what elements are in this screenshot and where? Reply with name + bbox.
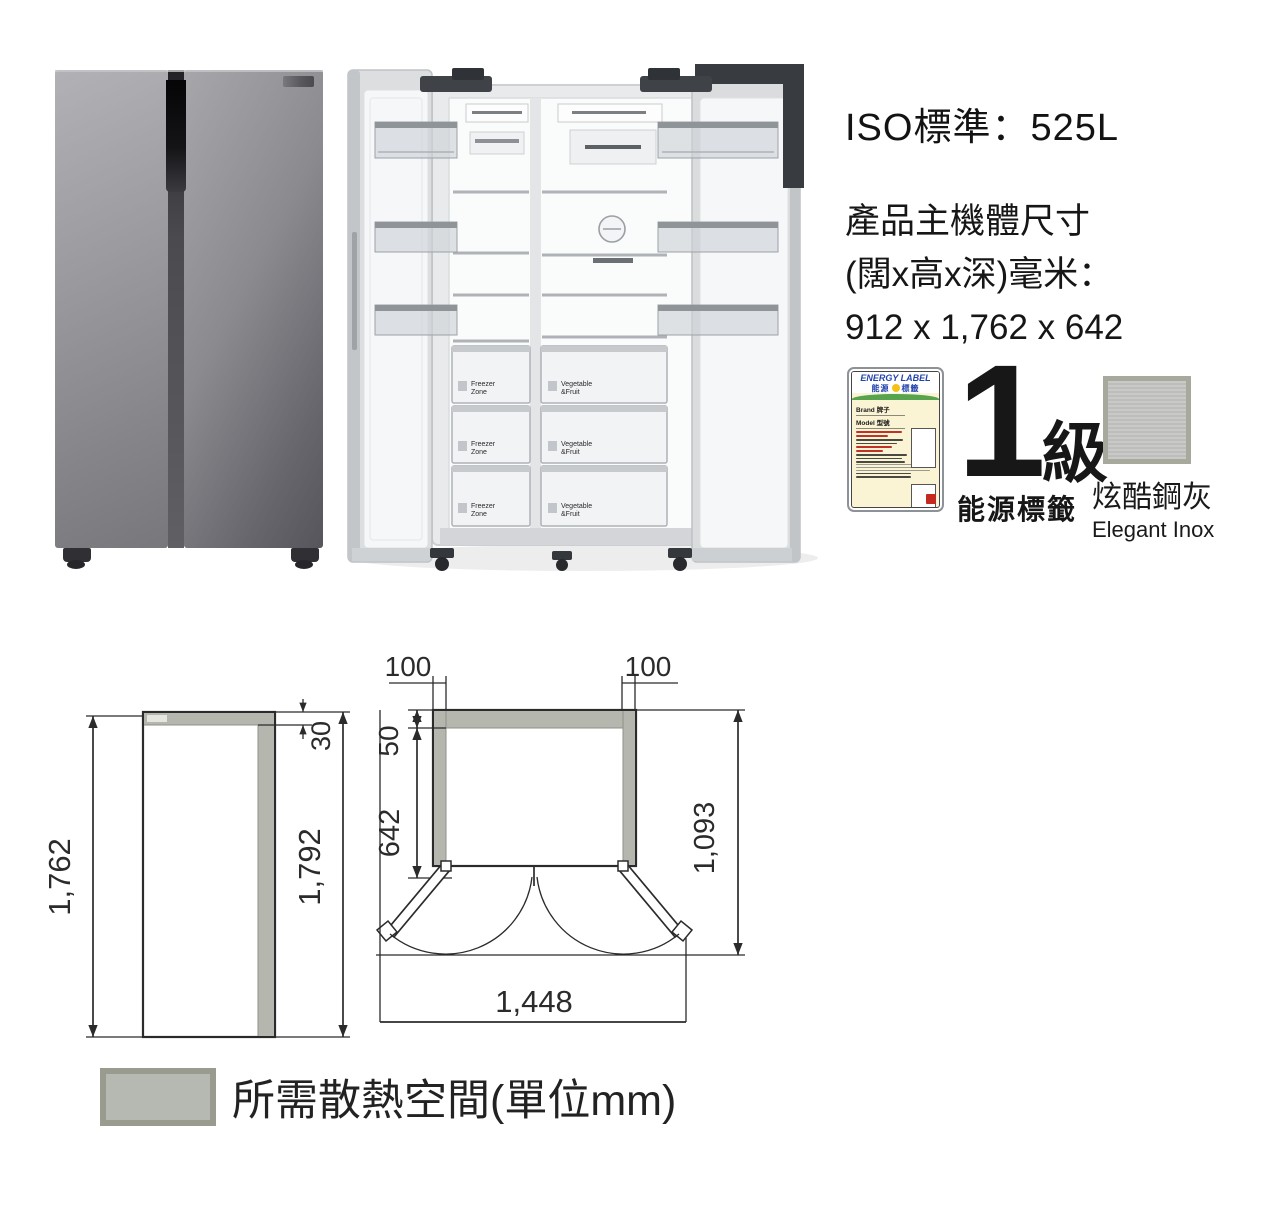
energy-label-fineprint-bar — [856, 470, 930, 471]
energy-label-redtext-bar — [856, 435, 888, 437]
closed-fridge-left-door — [55, 70, 168, 548]
side-view-body — [143, 712, 275, 1037]
side-view-rear-clearance-strip — [258, 725, 274, 1036]
top-view-rear-clearance-label: 50 — [373, 725, 404, 756]
iso-capacity-text: ISO標準：525L — [845, 96, 1265, 151]
energy-label-body: Brand 牌子 Model 型號 — [852, 400, 939, 507]
side-view-body-height-label: 1,762 — [42, 838, 77, 916]
side-view-top-clearance-label: 30 — [306, 721, 336, 751]
svg-text:Zone: Zone — [471, 511, 487, 518]
svg-text:Vegetable: Vegetable — [561, 381, 592, 388]
fridge-lamp-slit — [572, 111, 646, 114]
energy-label-title: ENERGY LABEL — [852, 373, 939, 383]
spec-text-block: ISO標準：525L 產品主機體尺寸 (闊x高x深)毫米： 912 x 1,76… — [845, 96, 1265, 354]
energy-label-redtext-bar — [856, 431, 902, 433]
drawer: Vegetable &Fruit — [541, 406, 667, 463]
finish-name-en: Elegant Inox — [1092, 517, 1202, 543]
energy-label-subtitle-right: 標籤 — [902, 383, 920, 394]
cabinet-center-divider — [530, 98, 541, 534]
top-view-right-clearance-label: 100 — [625, 651, 672, 682]
closed-fridge-handle-accent — [166, 80, 186, 192]
fridge-control-slit — [585, 145, 641, 149]
open-door-swing-drawing — [377, 861, 692, 954]
top-view-total-width-label: 1,448 — [495, 984, 573, 1019]
svg-text:Vegetable: Vegetable — [561, 441, 592, 448]
open-fridge-photo: Freezer Zone Freezer Zone Freezer Zone — [345, 55, 820, 580]
top-view-diagram: 100 100 50 642 1,093 — [365, 645, 760, 1035]
energy-label-text-bar — [856, 439, 903, 441]
right-hinge-block — [648, 68, 680, 80]
top-view-body-depth-label: 642 — [374, 809, 406, 857]
energy-label-text-bar — [856, 454, 907, 456]
svg-text:Vegetable: Vegetable — [561, 503, 592, 510]
energy-label-text-bar — [856, 443, 897, 445]
energy-label-header: ENERGY LABEL 能源 標籤 — [852, 372, 939, 393]
left-door-handle-groove — [352, 232, 357, 350]
energy-label-text-bar — [856, 461, 905, 463]
energy-label-text-bar — [856, 458, 902, 460]
vegetable-drawers: Vegetable &Fruit Vegetable &Fruit Vegeta… — [541, 346, 667, 526]
top-view-right-clearance-strip — [623, 711, 635, 865]
clearance-legend-text: 所需散熱空間(單位mm) — [232, 1066, 676, 1128]
energy-label-brand-row: Brand 牌子 — [856, 403, 905, 416]
energy-label-seal — [926, 494, 936, 504]
fridge-shelf-trim — [593, 258, 633, 263]
drawer: Freezer Zone — [452, 406, 530, 463]
svg-text:&Fruit: &Fruit — [561, 511, 580, 518]
drawer: Freezer Zone — [452, 466, 530, 526]
closed-fridge-left-foot — [63, 548, 91, 562]
svg-text:Freezer: Freezer — [471, 441, 496, 448]
energy-label-redtext-bar — [856, 446, 892, 448]
closed-fridge-right-foot — [291, 548, 319, 562]
energy-label: ENERGY LABEL 能源 標籤 Brand 牌子 Model 型號 — [847, 367, 944, 512]
spec-sheet: Freezer Zone Freezer Zone Freezer Zone — [0, 0, 1280, 1217]
finish-color-swatch — [1103, 376, 1191, 464]
top-view-left-clearance-strip — [434, 711, 446, 865]
freezer-drawers: Freezer Zone Freezer Zone Freezer Zone — [452, 346, 530, 526]
svg-text:Zone: Zone — [471, 389, 487, 396]
energy-label-subtitle-left: 能源 — [872, 383, 890, 394]
side-view-diagram: 1,762 1,792 30 — [40, 685, 370, 1055]
closed-fridge-photo — [55, 70, 323, 548]
svg-text:Zone: Zone — [471, 449, 487, 456]
side-view-strip-notch — [147, 715, 167, 722]
left-hinge-block — [452, 68, 484, 80]
clearance-legend-swatch — [100, 1068, 216, 1126]
finish-name-zh: 炫酷鋼灰 — [1092, 472, 1202, 516]
freezer-lamp-slit — [472, 111, 522, 114]
svg-text:Freezer: Freezer — [471, 381, 496, 388]
drawer: Vegetable &Fruit — [541, 346, 667, 403]
drawer: Vegetable &Fruit — [541, 466, 667, 526]
top-view-rear-clearance-strip — [434, 711, 635, 728]
energy-grade-block: 1 級 能源標籤 — [957, 360, 1093, 528]
top-view-body — [433, 710, 636, 866]
energy-label-white-box — [911, 428, 936, 468]
drawer: Freezer Zone — [452, 346, 530, 403]
dimensions-title: 產品主機體尺寸 — [845, 195, 1265, 248]
energy-label-text-bar — [856, 476, 911, 478]
closed-fridge-top-edge — [55, 70, 323, 72]
svg-text:&Fruit: &Fruit — [561, 389, 580, 396]
closed-fridge-right-door — [184, 70, 323, 548]
svg-text:&Fruit: &Fruit — [561, 449, 580, 456]
cabinet-base — [440, 528, 702, 545]
top-view-left-clearance-label: 100 — [385, 651, 432, 682]
dimensions-value: 912 x 1,762 x 642 — [845, 301, 1265, 354]
svg-text:Freezer: Freezer — [471, 503, 496, 510]
dimensions-unit: (闊x高x深)毫米： — [845, 248, 1265, 301]
clearance-legend: 所需散熱空間(單位mm) — [100, 1066, 676, 1128]
energy-label-redtext-bar — [856, 450, 883, 452]
grade-caption: 能源標籤 — [957, 488, 1093, 528]
energy-label-text-bar — [856, 473, 911, 475]
grade-number: 1 — [957, 360, 1040, 482]
sun-icon — [892, 384, 900, 392]
brand-logo — [283, 76, 314, 87]
finish-block: 炫酷鋼灰 Elegant Inox — [1092, 376, 1202, 543]
energy-label-model-row: Model 型號 — [856, 416, 905, 429]
side-view-total-height-label: 1,792 — [292, 828, 327, 906]
top-view-total-depth-label: 1,093 — [689, 802, 721, 875]
freezer-vent-slit — [475, 139, 519, 143]
